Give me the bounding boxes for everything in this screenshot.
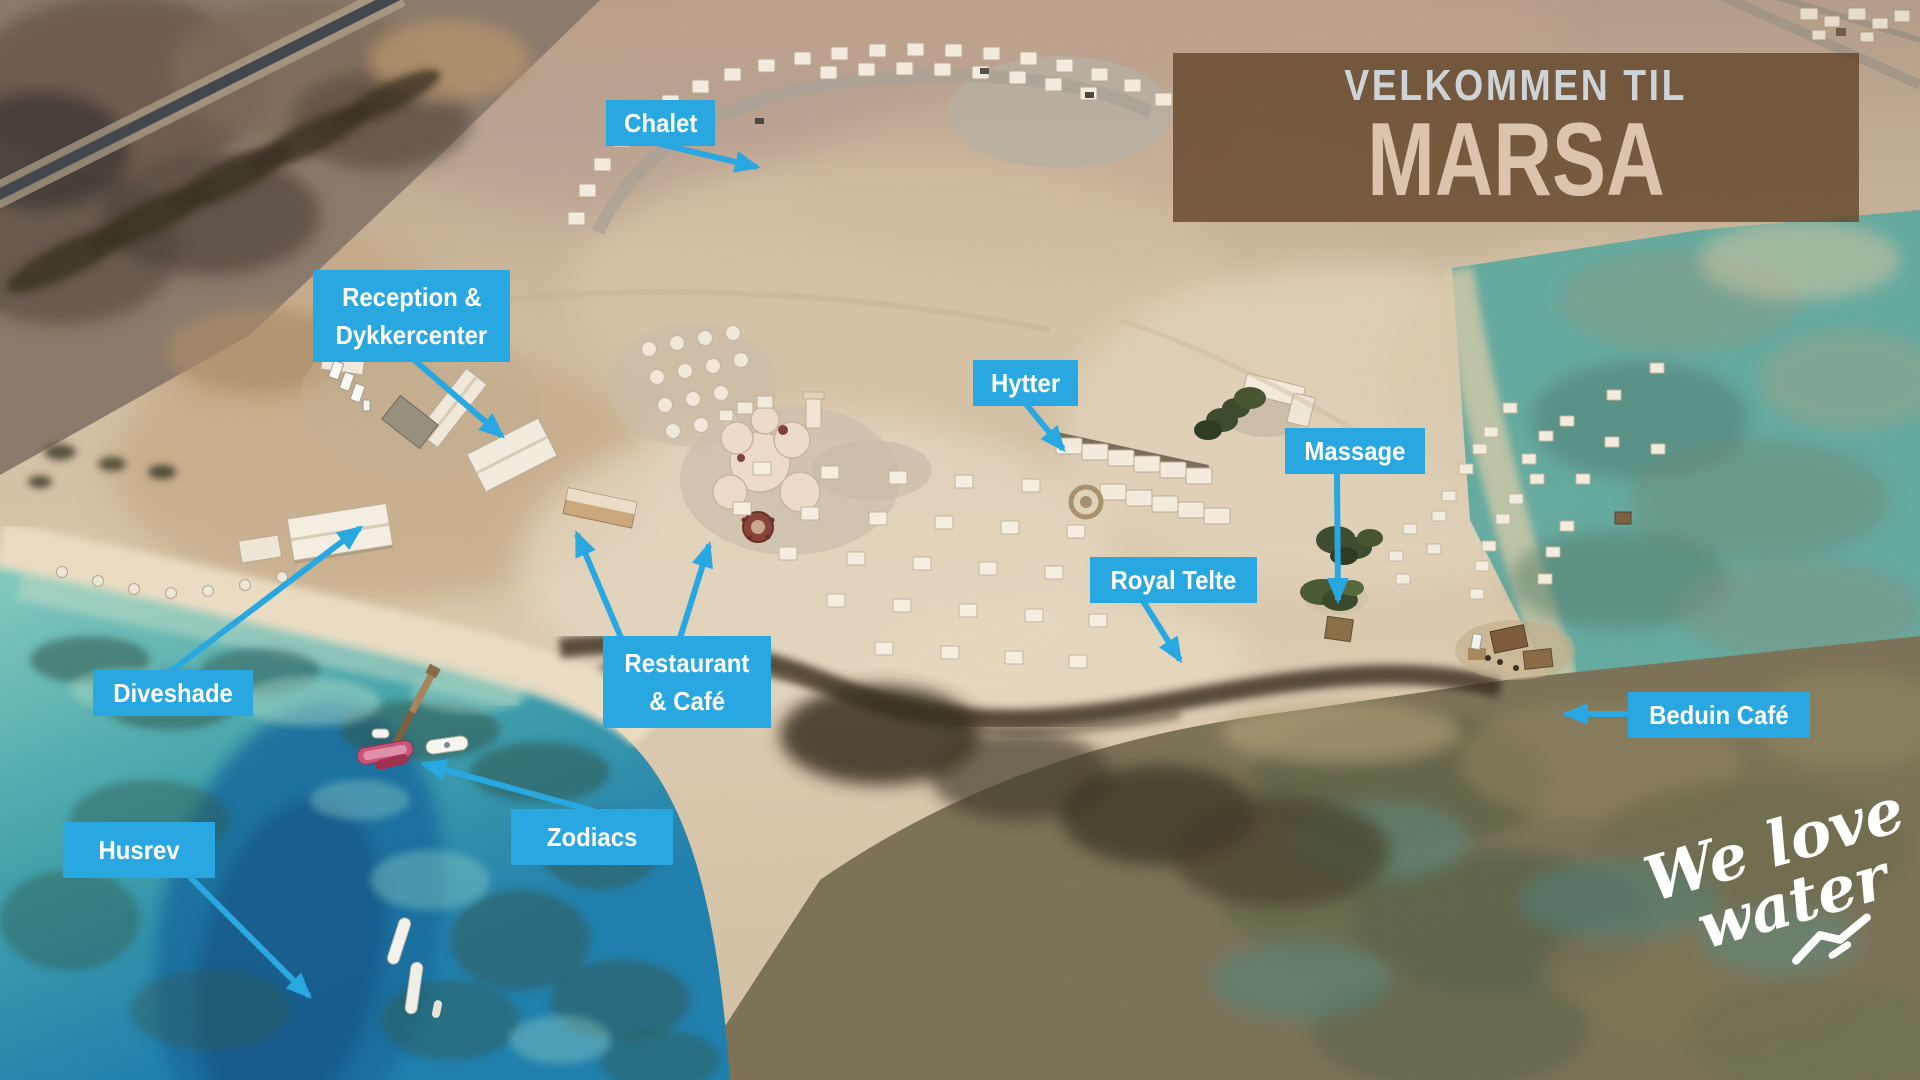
label-reception-line2: Dykkercenter (336, 316, 488, 354)
label-hytter-text: Hytter (991, 369, 1060, 397)
label-husrev: Husrev (63, 822, 215, 878)
label-beduin-cafe: Beduin Café (1628, 692, 1810, 738)
label-zodiacs-text: Zodiacs (547, 823, 637, 851)
marsa-shagra-map: Chalet Reception & Dykkercenter Hytter M… (0, 0, 1920, 1080)
label-husrev-text: Husrev (99, 836, 180, 864)
banner-title: MARSA SHAGRA (1173, 106, 1859, 222)
label-zodiacs: Zodiacs (511, 809, 673, 865)
welcome-banner: VELKOMMEN TIL MARSA SHAGRA (1173, 53, 1859, 222)
label-chalet-text: Chalet (624, 109, 697, 137)
label-reception-line1: Reception & (342, 278, 482, 316)
label-chalet: Chalet (606, 100, 715, 146)
label-restaurant-line2: & Café (649, 682, 725, 720)
banner-title-text: MARSA SHAGRA (1248, 106, 1783, 222)
label-diveshade-text: Diveshade (113, 679, 233, 707)
label-massage: Massage (1285, 428, 1425, 474)
label-restaurant-line1: Restaurant (624, 644, 749, 682)
label-massage-text: Massage (1304, 437, 1405, 465)
label-royal-telte-text: Royal Telte (1110, 566, 1236, 594)
label-restaurant: Restaurant & Café (603, 636, 771, 728)
label-diveshade: Diveshade (93, 670, 253, 716)
label-beduin-cafe-text: Beduin Café (1649, 701, 1789, 729)
label-royal-telte: Royal Telte (1090, 557, 1257, 603)
label-reception: Reception & Dykkercenter (313, 270, 510, 362)
label-hytter: Hytter (973, 360, 1078, 406)
